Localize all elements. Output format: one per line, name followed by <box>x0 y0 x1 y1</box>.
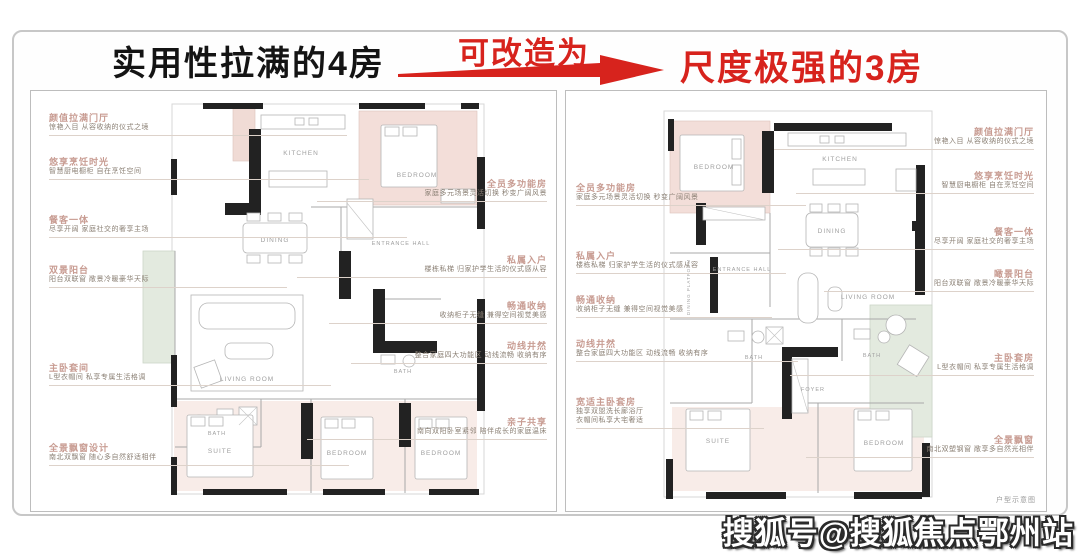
room-label-foyer: FOYER <box>801 387 825 393</box>
room-label-entrance: ENTRANCE HALL <box>372 241 431 247</box>
leader-line <box>778 249 1034 250</box>
room-label-bedroom3: BEDROOM <box>421 450 462 457</box>
leader-line <box>576 205 806 206</box>
leader-line <box>49 135 347 136</box>
annotation: 颜值拉满门厅 惊艳入目 从容收纳的仪式之境 <box>866 127 1034 147</box>
floor-plan-panel-4-room: KITCHEN DINING LIVING ROOM BEDROOM ENTRA… <box>30 90 557 512</box>
room-label-bath1: BATH <box>208 431 226 437</box>
leader-line <box>576 428 764 429</box>
arrow-right-icon <box>398 53 666 87</box>
annotation: 亲子共享 南向双阳卧室紧邻 陪伴成长的家庭温床 <box>379 417 547 437</box>
annotation: 瞰景阳台 阳台双联窗 敞景冷暖豪华天际 <box>866 269 1034 289</box>
leader-line <box>576 317 772 318</box>
room-label-dining: DINING <box>261 237 290 244</box>
room-label-bedroom2: BEDROOM <box>327 450 368 457</box>
room-label-bedroom-top: BEDROOM <box>397 172 438 179</box>
leader-line <box>49 179 369 180</box>
plan-disclaimer: 户型示意图 <box>996 495 1036 505</box>
leader-line <box>796 193 1034 194</box>
annotation: 畅通收纳 收纳柜子无缝 兼得空间视觉美感 <box>576 295 726 315</box>
leader-line <box>806 457 1034 458</box>
room-label-bedroom-top: BEDROOM <box>694 164 735 171</box>
annotation: 私属入户 楼栋私梯 归家护学生活的仪式感从容 <box>379 255 547 275</box>
leader-line <box>351 363 547 364</box>
room-label-dining: DINING <box>818 228 847 235</box>
annotation: 动线井然 整合家庭四大功能区 动线流畅 收纳有序 <box>576 339 726 359</box>
room-label-living: LIVING ROOM <box>220 376 274 383</box>
leader-line <box>824 291 1034 292</box>
annotation: 主卧套房 L型衣帽间 私享专属生活格调 <box>866 353 1034 373</box>
annotation: 主卧套间 L型衣帽间 私享专属生活格调 <box>49 363 217 383</box>
annotation: 全员多功能房 家庭多元场景灵活切换 秒变广阔风景 <box>379 179 547 199</box>
leader-line <box>49 385 331 386</box>
annotation: 餐客一体 尽享开阔 家庭社交的奢享主场 <box>49 215 217 235</box>
watermark-sohu: 搜狐号@搜狐焦点鄂州站 <box>723 508 1074 553</box>
leader-line <box>49 465 349 466</box>
leader-line <box>49 287 287 288</box>
leader-line <box>576 273 786 274</box>
room-label-living: LIVING ROOM <box>841 294 895 301</box>
room-label-bath2: BATH <box>394 369 412 375</box>
annotation: 全景飘窗 南北双塑钢窗 敞享多自然光相伴 <box>866 435 1034 455</box>
leader-line <box>307 439 547 440</box>
leader-line <box>774 149 1034 150</box>
annotation: 双景阳台 阳台双联窗 敞景冷暖豪华天际 <box>49 265 217 285</box>
annotation: 悠享烹饪时光 智慧厨电橱柜 自在烹饪空间 <box>49 157 217 177</box>
leader-line <box>576 361 798 362</box>
annotation: 全员多功能房 家庭多元场景灵活切换 秒变广阔风景 <box>576 183 726 203</box>
leader-line <box>297 277 547 278</box>
left-plan-title: 实用性拉满的4房 <box>112 36 385 85</box>
annotation: 全景飘窗设计 南北双飘窗 随心多自然舒适相伴 <box>49 443 217 463</box>
floor-plan-panel-3-room: BEDROOM KITCHEN DINING LIVING ROOM ENTRA… <box>565 90 1047 512</box>
annotation: 动线井然 整合家庭四大功能区 动线流畅 收纳有序 <box>379 341 547 361</box>
room-label-suite: SUITE <box>706 438 730 445</box>
annotation: 私属入户 楼栋私梯 归家护学生活的仪式感从容 <box>576 251 726 271</box>
annotation: 畅通收纳 收纳柜子无缝 兼得空间视觉美感 <box>379 301 547 321</box>
room-label-kitchen: KITCHEN <box>283 150 319 157</box>
leader-line <box>317 201 547 202</box>
annotation: 餐客一体 尽享开阔 家庭社交的奢享主场 <box>866 227 1034 247</box>
annotation: 宽适主卧套房 独享双盥洗长廊浴厅 衣帽间私享大宅奢适 <box>576 397 726 426</box>
right-plan-title: 尺度极强的3房 <box>680 40 923 91</box>
annotation: 悠享烹饪时光 智慧厨电橱柜 自在烹饪空间 <box>866 171 1034 191</box>
room-label-kitchen: KITCHEN <box>822 156 858 163</box>
leader-line <box>49 237 407 238</box>
leader-line <box>790 375 1034 376</box>
leader-line <box>329 323 547 324</box>
annotation: 颜值拉满门厅 惊艳入目 从容收纳的仪式之境 <box>49 113 217 133</box>
